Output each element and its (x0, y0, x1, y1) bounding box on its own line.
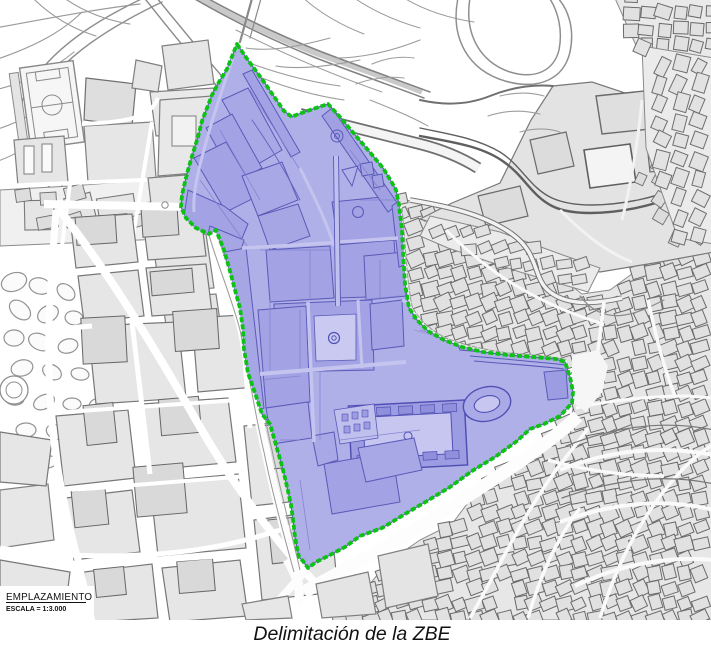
svg-text:EMPLAZAMIENTO: EMPLAZAMIENTO (6, 592, 92, 603)
svg-text:ESCALA = 1:3.000: ESCALA = 1:3.000 (6, 606, 66, 613)
svg-text:Delimitación de la ZBE: Delimitación de la ZBE (253, 623, 451, 645)
